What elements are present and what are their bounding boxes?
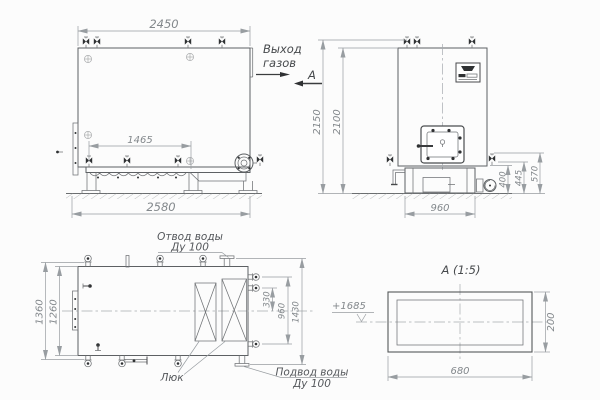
valve-icon — [219, 37, 225, 48]
dimension-grate-1465: 1465 — [89, 135, 191, 169]
nameplate — [456, 63, 480, 82]
nozzle-icon — [199, 255, 206, 266]
valve-icon — [83, 37, 89, 48]
valve-icon — [185, 37, 191, 48]
valve-icon — [175, 156, 181, 167]
elevation-mark: +1685 — [332, 301, 374, 322]
dimension-base-960: 960 — [405, 196, 475, 218]
elevation-arrow-icon — [357, 314, 366, 322]
water-outlet-text-2: Ду 100 — [170, 242, 209, 254]
dim-label-400: 400 — [499, 171, 509, 187]
support-frame — [82, 167, 257, 194]
dim-label-2100: 2100 — [332, 109, 343, 134]
dim-label-1430: 1430 — [292, 301, 302, 323]
plan-ladder-bracket — [73, 291, 79, 330]
front-base — [391, 168, 475, 193]
hatch-label: Люк — [159, 342, 225, 385]
hatch-text: Люк — [159, 372, 184, 384]
side-view: 2450 1465 2580 Выход газов — [56, 17, 302, 218]
dim-label-200: 200 — [546, 312, 557, 331]
nozzle-icon — [248, 340, 259, 347]
gas-outlet-text-1: Выход — [263, 42, 302, 56]
vent-icon — [84, 131, 91, 138]
dim-label-330: 330 — [263, 291, 273, 307]
technical-drawing-boiler: 2450 1465 2580 Выход газов А — [0, 0, 600, 400]
ash-door — [423, 178, 450, 193]
boiler-body-side — [78, 48, 250, 167]
nozzle-icon — [248, 273, 259, 280]
water-inlet-flange-icon — [235, 356, 249, 367]
valve-icon — [94, 37, 100, 48]
nozzle-icon — [156, 255, 163, 266]
water-outlet-label: Отвод воды Ду 100 — [157, 231, 228, 258]
water-inlet-label: Подвод воды Ду 100 — [244, 367, 348, 391]
nozzle-icon — [84, 255, 91, 266]
valve-icon — [124, 156, 130, 167]
section-marker-a: А — [294, 68, 322, 87]
ground-side — [66, 194, 262, 200]
dimension-width-680: 680 — [388, 356, 532, 381]
dimension-height-2100: 2100 — [332, 48, 398, 194]
dimension-right-960: 960 — [262, 277, 292, 344]
side-ladder-bracket — [56, 123, 78, 175]
dim-label-1360: 1360 — [35, 299, 46, 324]
dim-label-960-front: 960 — [430, 203, 449, 214]
furnace-door — [417, 126, 464, 163]
nozzle-icon — [84, 356, 91, 367]
plan-view: 1360 1260 330 960 1430 Отвод воды Д — [35, 231, 349, 390]
hatch-1 — [195, 283, 216, 341]
dim-label-2150: 2150 — [312, 109, 323, 134]
section-marker-text: А — [307, 68, 316, 82]
valve-icon — [387, 155, 393, 166]
dim-label-1260: 1260 — [49, 299, 60, 324]
valve-icon — [469, 37, 475, 48]
vent-stub — [126, 256, 129, 268]
elevation-text: +1685 — [332, 301, 366, 312]
detail-view-a: А (1:5) +1685 200 680 — [332, 263, 557, 381]
valve-icon — [257, 155, 263, 166]
water-inlet-text-2: Ду 100 — [292, 378, 331, 390]
valve-icon — [404, 37, 410, 48]
vent-icon — [84, 55, 91, 62]
fan-icon — [477, 179, 497, 192]
drawing-canvas: 2450 1465 2580 Выход газов А — [0, 0, 600, 400]
valve-icon — [489, 154, 495, 165]
dim-label-445: 445 — [515, 170, 525, 186]
gas-outlet-text-2: газов — [263, 56, 296, 70]
inner-fittings — [83, 284, 101, 351]
vent-icon — [186, 157, 193, 164]
front-view: А — [294, 37, 545, 218]
dimension-overall-2580: 2580 — [72, 196, 250, 218]
ground-front — [318, 194, 545, 200]
detail-title: А (1:5) — [440, 263, 480, 277]
nozzle-icon — [248, 284, 259, 291]
water-inlet-text-1: Подвод воды — [276, 367, 349, 379]
valve-icon — [414, 37, 420, 48]
duct-outer — [388, 292, 532, 352]
dim-label-2580: 2580 — [146, 200, 175, 214]
dim-label-960-plan: 960 — [278, 303, 288, 319]
drain-assembly — [118, 356, 147, 367]
hatch-2 — [222, 279, 247, 341]
vent-icon — [186, 53, 193, 60]
gas-outlet-label: Выход газов — [256, 42, 302, 77]
water-outlet-flange-icon — [220, 256, 234, 267]
nozzle-icon — [174, 356, 181, 367]
dim-label-680: 680 — [450, 366, 469, 377]
burner-flange — [235, 154, 257, 172]
dim-label-2450: 2450 — [149, 17, 178, 31]
dim-label-1465: 1465 — [127, 135, 152, 146]
dimension-right-330: 330 — [262, 288, 277, 311]
dim-label-570: 570 — [531, 166, 541, 182]
gas-flow-arrow-icon — [256, 72, 290, 77]
